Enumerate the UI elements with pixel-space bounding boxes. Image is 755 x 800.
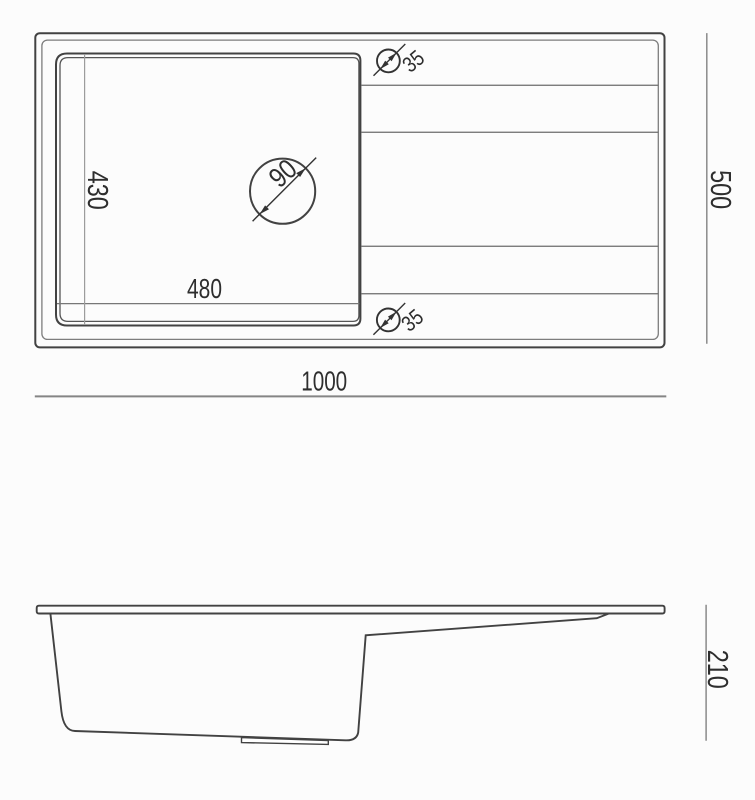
svg-text:35: 35 bbox=[396, 304, 428, 336]
svg-text:430: 430 bbox=[81, 171, 113, 210]
svg-text:500: 500 bbox=[704, 170, 736, 209]
svg-text:1000: 1000 bbox=[301, 366, 347, 397]
svg-text:210: 210 bbox=[701, 650, 733, 689]
svg-text:480: 480 bbox=[187, 273, 222, 304]
svg-text:35: 35 bbox=[397, 45, 429, 77]
svg-text:90: 90 bbox=[263, 153, 303, 193]
